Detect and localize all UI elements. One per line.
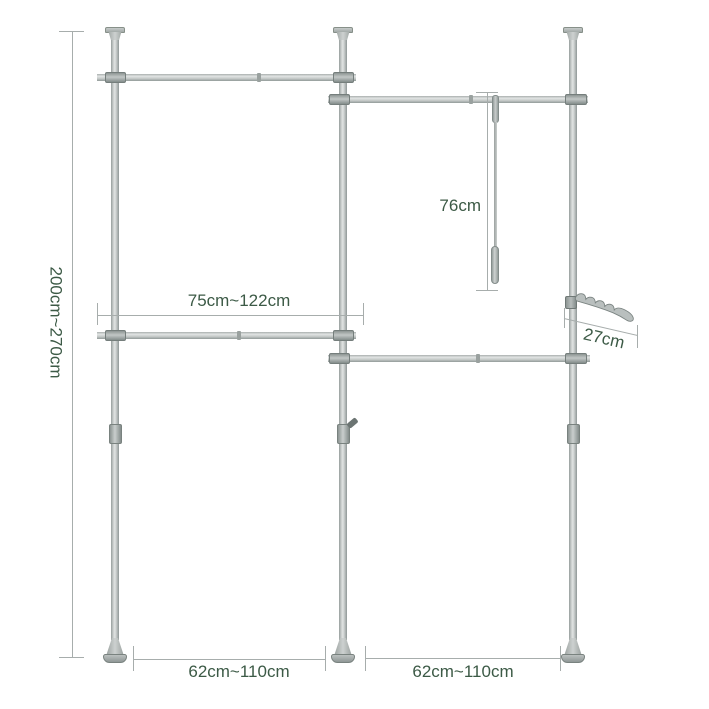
- swing-rod-dimension-line: [487, 92, 488, 290]
- bottom-left-span-label: 62cm~110cm: [159, 662, 319, 681]
- bottom-left-span-right-tick: [325, 646, 326, 671]
- middle-right-bar-right-connector: [565, 353, 587, 364]
- swing-rod-handle: [491, 246, 499, 284]
- swing-rod-dimension-top-tick: [476, 92, 498, 93]
- height-dimension-top-tick: [59, 31, 84, 32]
- bottom-right-span-left-tick: [365, 646, 366, 671]
- middle-left-bar-right-connector: [333, 330, 354, 341]
- top-left-bar-left-connector: [105, 72, 126, 83]
- left-pole-height-adjuster: [109, 424, 122, 444]
- middle-right-bar-left-connector: [329, 353, 350, 364]
- upper-bar-dimension-line: [97, 315, 364, 316]
- right-pole-base-foot: [561, 654, 585, 663]
- bottom-left-span-dimension-line: [133, 659, 325, 660]
- upper-bar-dimension-left-tick: [97, 303, 98, 325]
- height-dimension-line: [72, 31, 73, 657]
- top-right-bar-telescopic-joint: [469, 95, 473, 104]
- top-left-hanging-bar: [97, 74, 356, 81]
- bottom-left-span-left-tick: [133, 646, 134, 671]
- top-left-bar-right-connector: [333, 72, 354, 83]
- swing-rod-dimension-bottom-tick: [476, 290, 498, 291]
- left-pole-base-foot: [103, 654, 127, 663]
- middle-left-bar-left-connector: [105, 330, 126, 341]
- middle-right-bar-telescopic-joint: [476, 354, 480, 363]
- upper-bar-dimension-label: 75cm~122cm: [159, 291, 319, 310]
- top-left-bar-telescopic-joint: [257, 73, 261, 82]
- upper-bar-dimension-right-tick: [363, 303, 364, 325]
- middle-left-bar-telescopic-joint: [237, 331, 241, 340]
- height-dimension-label: 200cm~270cm: [47, 261, 66, 385]
- clothes-rack-dimension-diagram: 200cm~270cm 75cm~122cm 76cm 27cm 62cm~11…: [0, 0, 709, 709]
- height-dimension-bottom-tick: [59, 657, 84, 658]
- top-right-hanging-bar: [328, 96, 588, 103]
- middle-pole-base-foot: [331, 654, 355, 663]
- top-right-bar-left-connector: [329, 94, 350, 105]
- swing-rod-dimension-label: 76cm: [383, 196, 481, 215]
- bottom-right-span-dimension-line: [365, 658, 560, 659]
- swing-rod-top-sleeve: [492, 95, 499, 123]
- right-pole-height-adjuster: [567, 424, 580, 444]
- middle-left-hanging-bar: [97, 332, 356, 339]
- swing-rod-shaft: [494, 122, 497, 248]
- bottom-right-span-right-tick: [560, 646, 561, 671]
- middle-pole-lock-lever: [346, 417, 358, 429]
- bottom-right-span-label: 62cm~110cm: [383, 662, 543, 681]
- top-right-bar-right-connector: [565, 94, 587, 105]
- middle-right-hanging-bar: [328, 355, 590, 362]
